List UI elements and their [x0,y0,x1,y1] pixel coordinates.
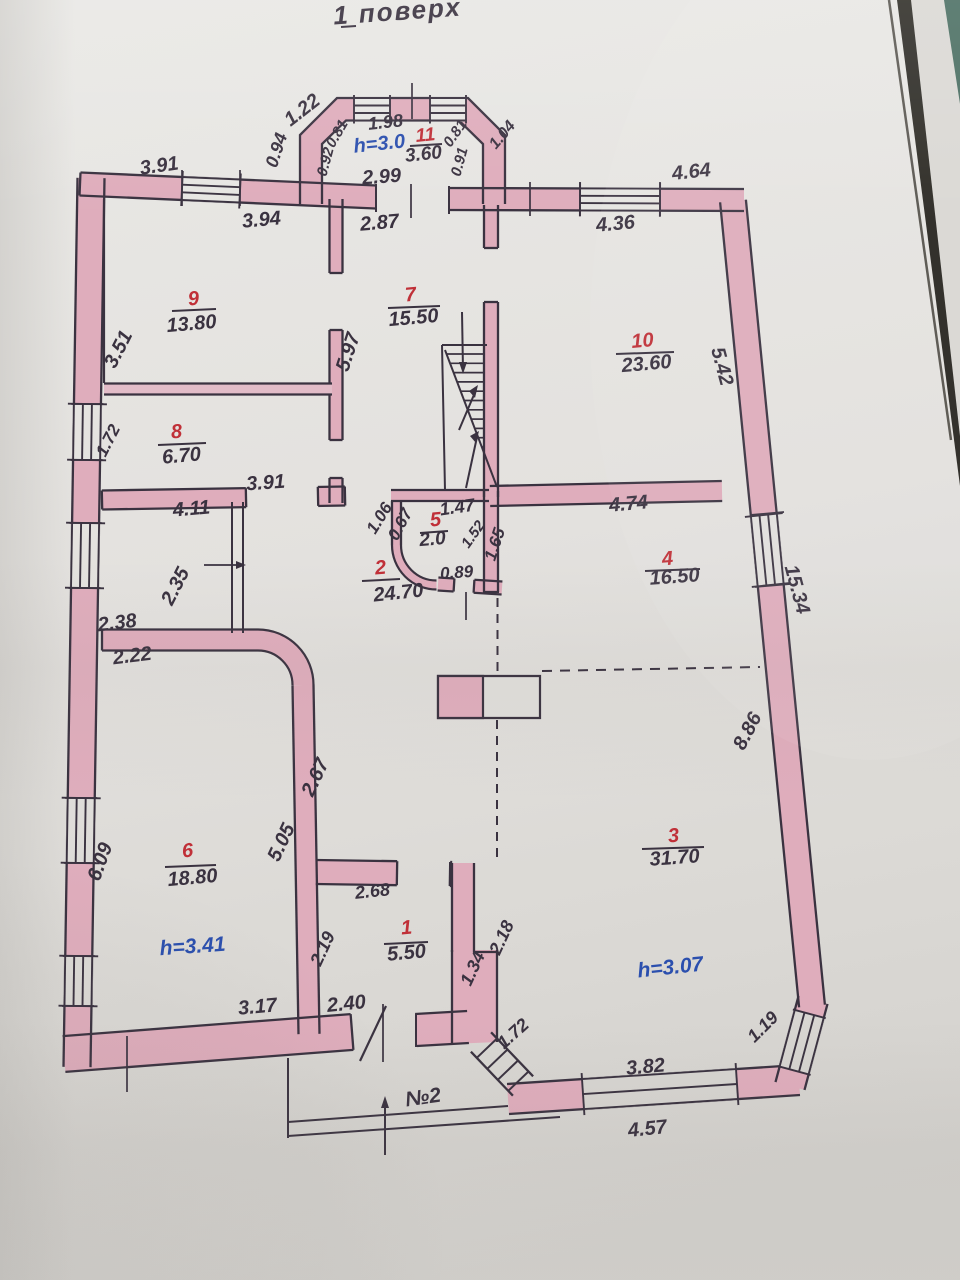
svg-text:6.70: 6.70 [161,443,202,468]
svg-text:5.50: 5.50 [386,940,427,965]
svg-text:13.80: 13.80 [166,311,218,337]
svg-text:15.50: 15.50 [388,305,440,331]
svg-text:1: 1 [400,917,413,940]
svg-text:2.0: 2.0 [417,528,447,551]
svg-text:31.70: 31.70 [649,845,700,870]
svg-text:2.68: 2.68 [353,879,391,903]
svg-text:3.91: 3.91 [245,471,285,496]
svg-text:3: 3 [667,825,680,848]
svg-text:4.11: 4.11 [171,496,211,521]
